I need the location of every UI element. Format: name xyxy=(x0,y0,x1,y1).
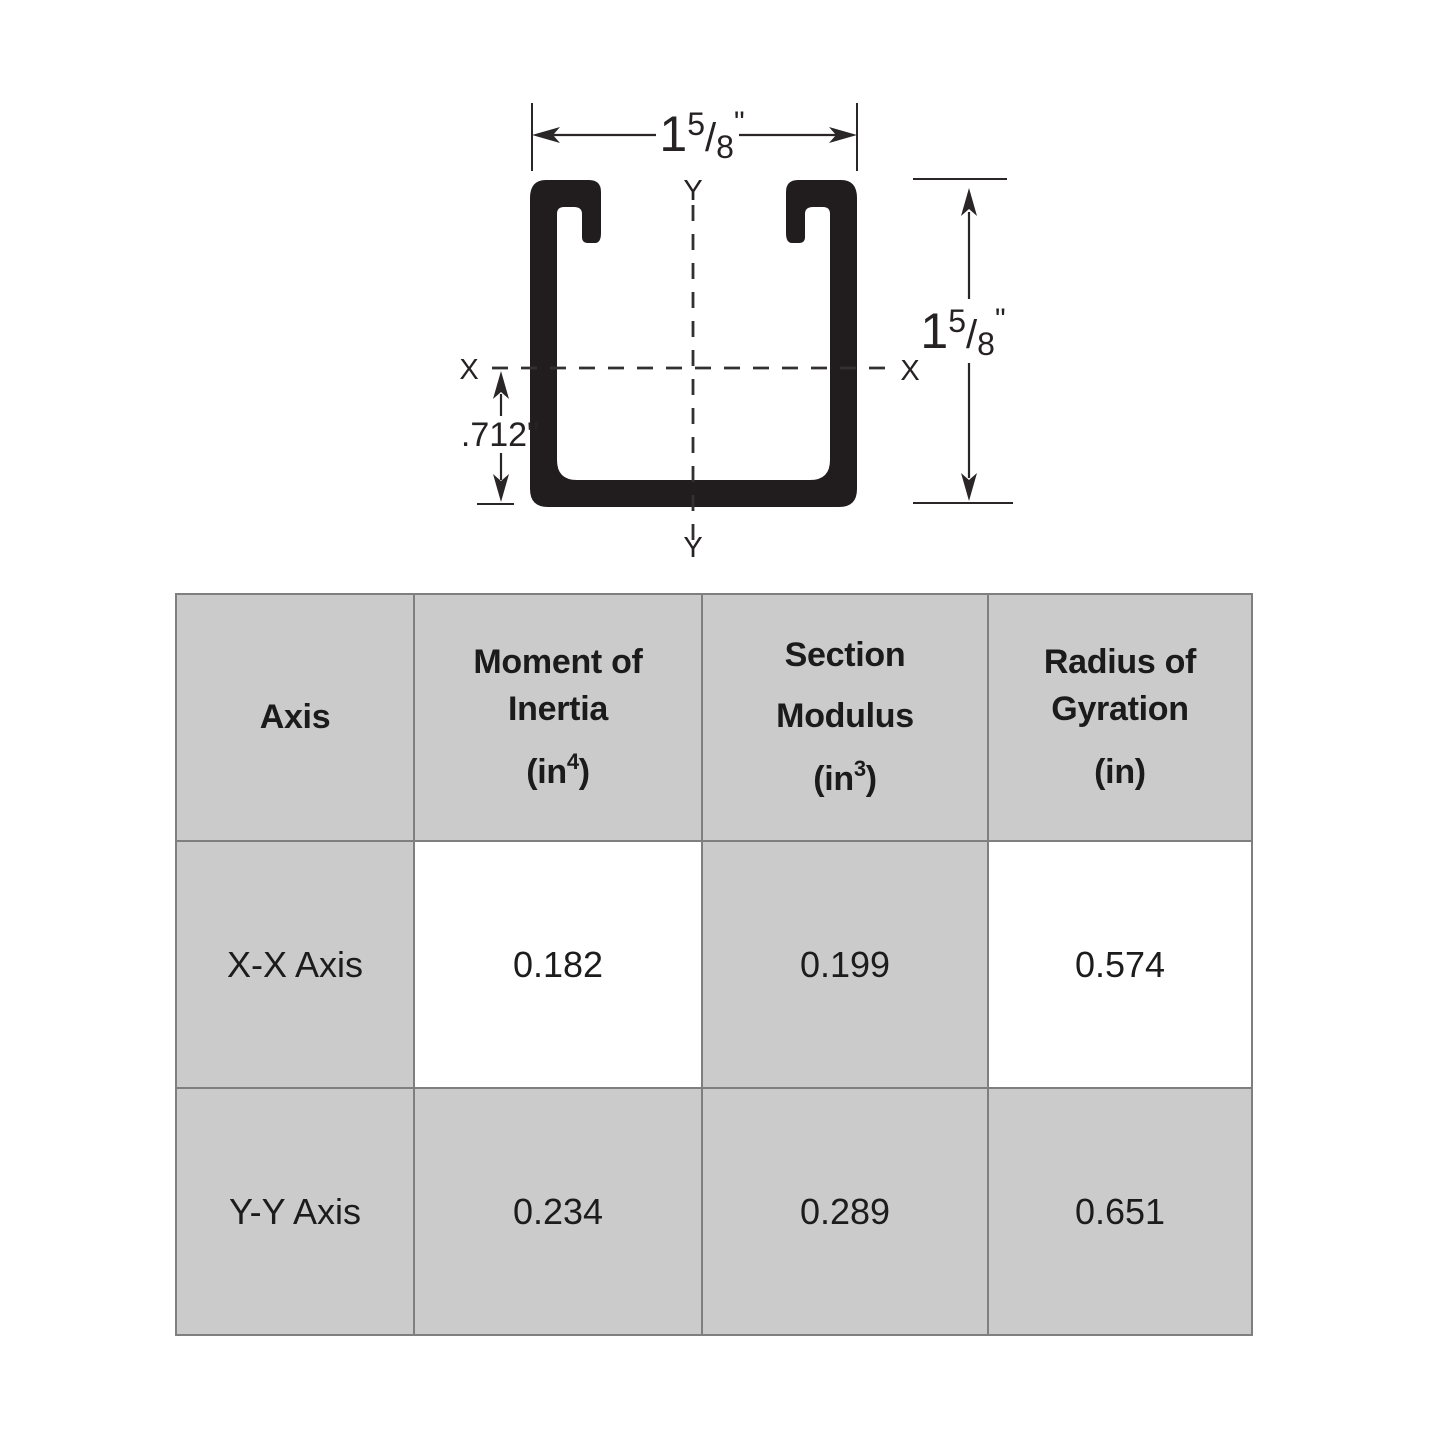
strut-channel-spec-sheet: 15/8" 15/8" .712" X X Y Y Axis Moment of… xyxy=(0,0,1445,1445)
cell-xx-moment-of-inertia: 0.182 xyxy=(415,842,701,1087)
x-axis-label-right: X xyxy=(900,355,919,387)
height-arrowhead-up xyxy=(961,188,977,216)
cell-xx-radius-of-gyration: 0.574 xyxy=(989,842,1251,1087)
width-dim-label: 15/8" xyxy=(659,106,744,165)
header-axis: Axis xyxy=(177,595,413,840)
header-moment-of-inertia: Moment of Inertia (in4) xyxy=(415,595,701,840)
header-unit: (in3) xyxy=(813,756,877,803)
header-axis-label: Axis xyxy=(260,694,331,741)
header-line: Radius of xyxy=(1044,639,1196,686)
header-line: Modulus xyxy=(776,693,914,740)
y-axis-label-top: Y xyxy=(683,175,702,207)
header-unit: (in) xyxy=(1094,749,1146,796)
cell-yy-radius-of-gyration: 0.651 xyxy=(989,1089,1251,1334)
section-properties-table: Axis Moment of Inertia (in4) Section Mod… xyxy=(175,593,1253,1336)
cell-yy-moment-of-inertia: 0.234 xyxy=(415,1089,701,1334)
cell-xx-axis-label: X-X Axis xyxy=(177,842,413,1087)
header-radius-of-gyration: Radius of Gyration (in) xyxy=(989,595,1251,840)
channel-cross-section-diagram: 15/8" 15/8" .712" X X Y Y xyxy=(0,0,1445,580)
y-axis-label-bottom: Y xyxy=(683,532,702,564)
cell-yy-axis-label: Y-Y Axis xyxy=(177,1089,413,1334)
header-section-modulus: Section Modulus (in3) xyxy=(703,595,987,840)
height-dim-label: 15/8" xyxy=(920,303,1005,362)
header-line: Gyration xyxy=(1051,686,1188,733)
header-line: Inertia xyxy=(508,686,608,733)
cell-xx-section-modulus: 0.199 xyxy=(703,842,987,1087)
channel-profile-shape xyxy=(530,180,857,507)
x-axis-label-left: X xyxy=(459,354,478,386)
offset-dim-label: .712" xyxy=(461,416,539,454)
header-unit: (in4) xyxy=(526,749,590,796)
header-line: Section xyxy=(785,632,906,679)
header-line: Moment of xyxy=(473,639,642,686)
cell-yy-section-modulus: 0.289 xyxy=(703,1089,987,1334)
